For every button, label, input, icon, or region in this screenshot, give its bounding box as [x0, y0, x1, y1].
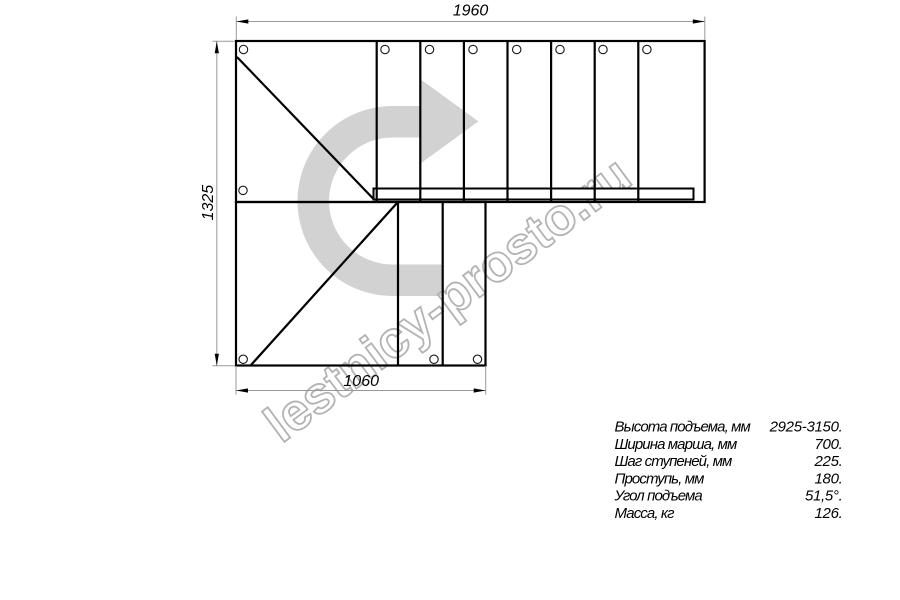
svg-text:180.: 180. — [815, 470, 843, 487]
svg-text:2925-3150.: 2925-3150. — [769, 419, 843, 436]
svg-text:1325: 1325 — [200, 185, 217, 221]
svg-text:1060: 1060 — [343, 373, 379, 390]
svg-text:1960: 1960 — [453, 3, 489, 20]
svg-text:Проступь, мм: Проступь, мм — [615, 470, 705, 487]
svg-text:Угол подъема: Угол подъема — [614, 488, 703, 505]
svg-text:Шаг ступеней, мм: Шаг ступеней, мм — [615, 453, 733, 470]
svg-text:Масса, кг: Масса, кг — [615, 505, 676, 522]
svg-text:126.: 126. — [815, 505, 843, 522]
svg-text:Ширина марша, мм: Ширина марша, мм — [615, 436, 737, 453]
svg-text:225.: 225. — [814, 453, 843, 470]
svg-text:Высота подъема, мм: Высота подъема, мм — [615, 419, 751, 436]
svg-text:51,5°.: 51,5°. — [805, 488, 843, 505]
svg-text:700.: 700. — [815, 436, 843, 453]
